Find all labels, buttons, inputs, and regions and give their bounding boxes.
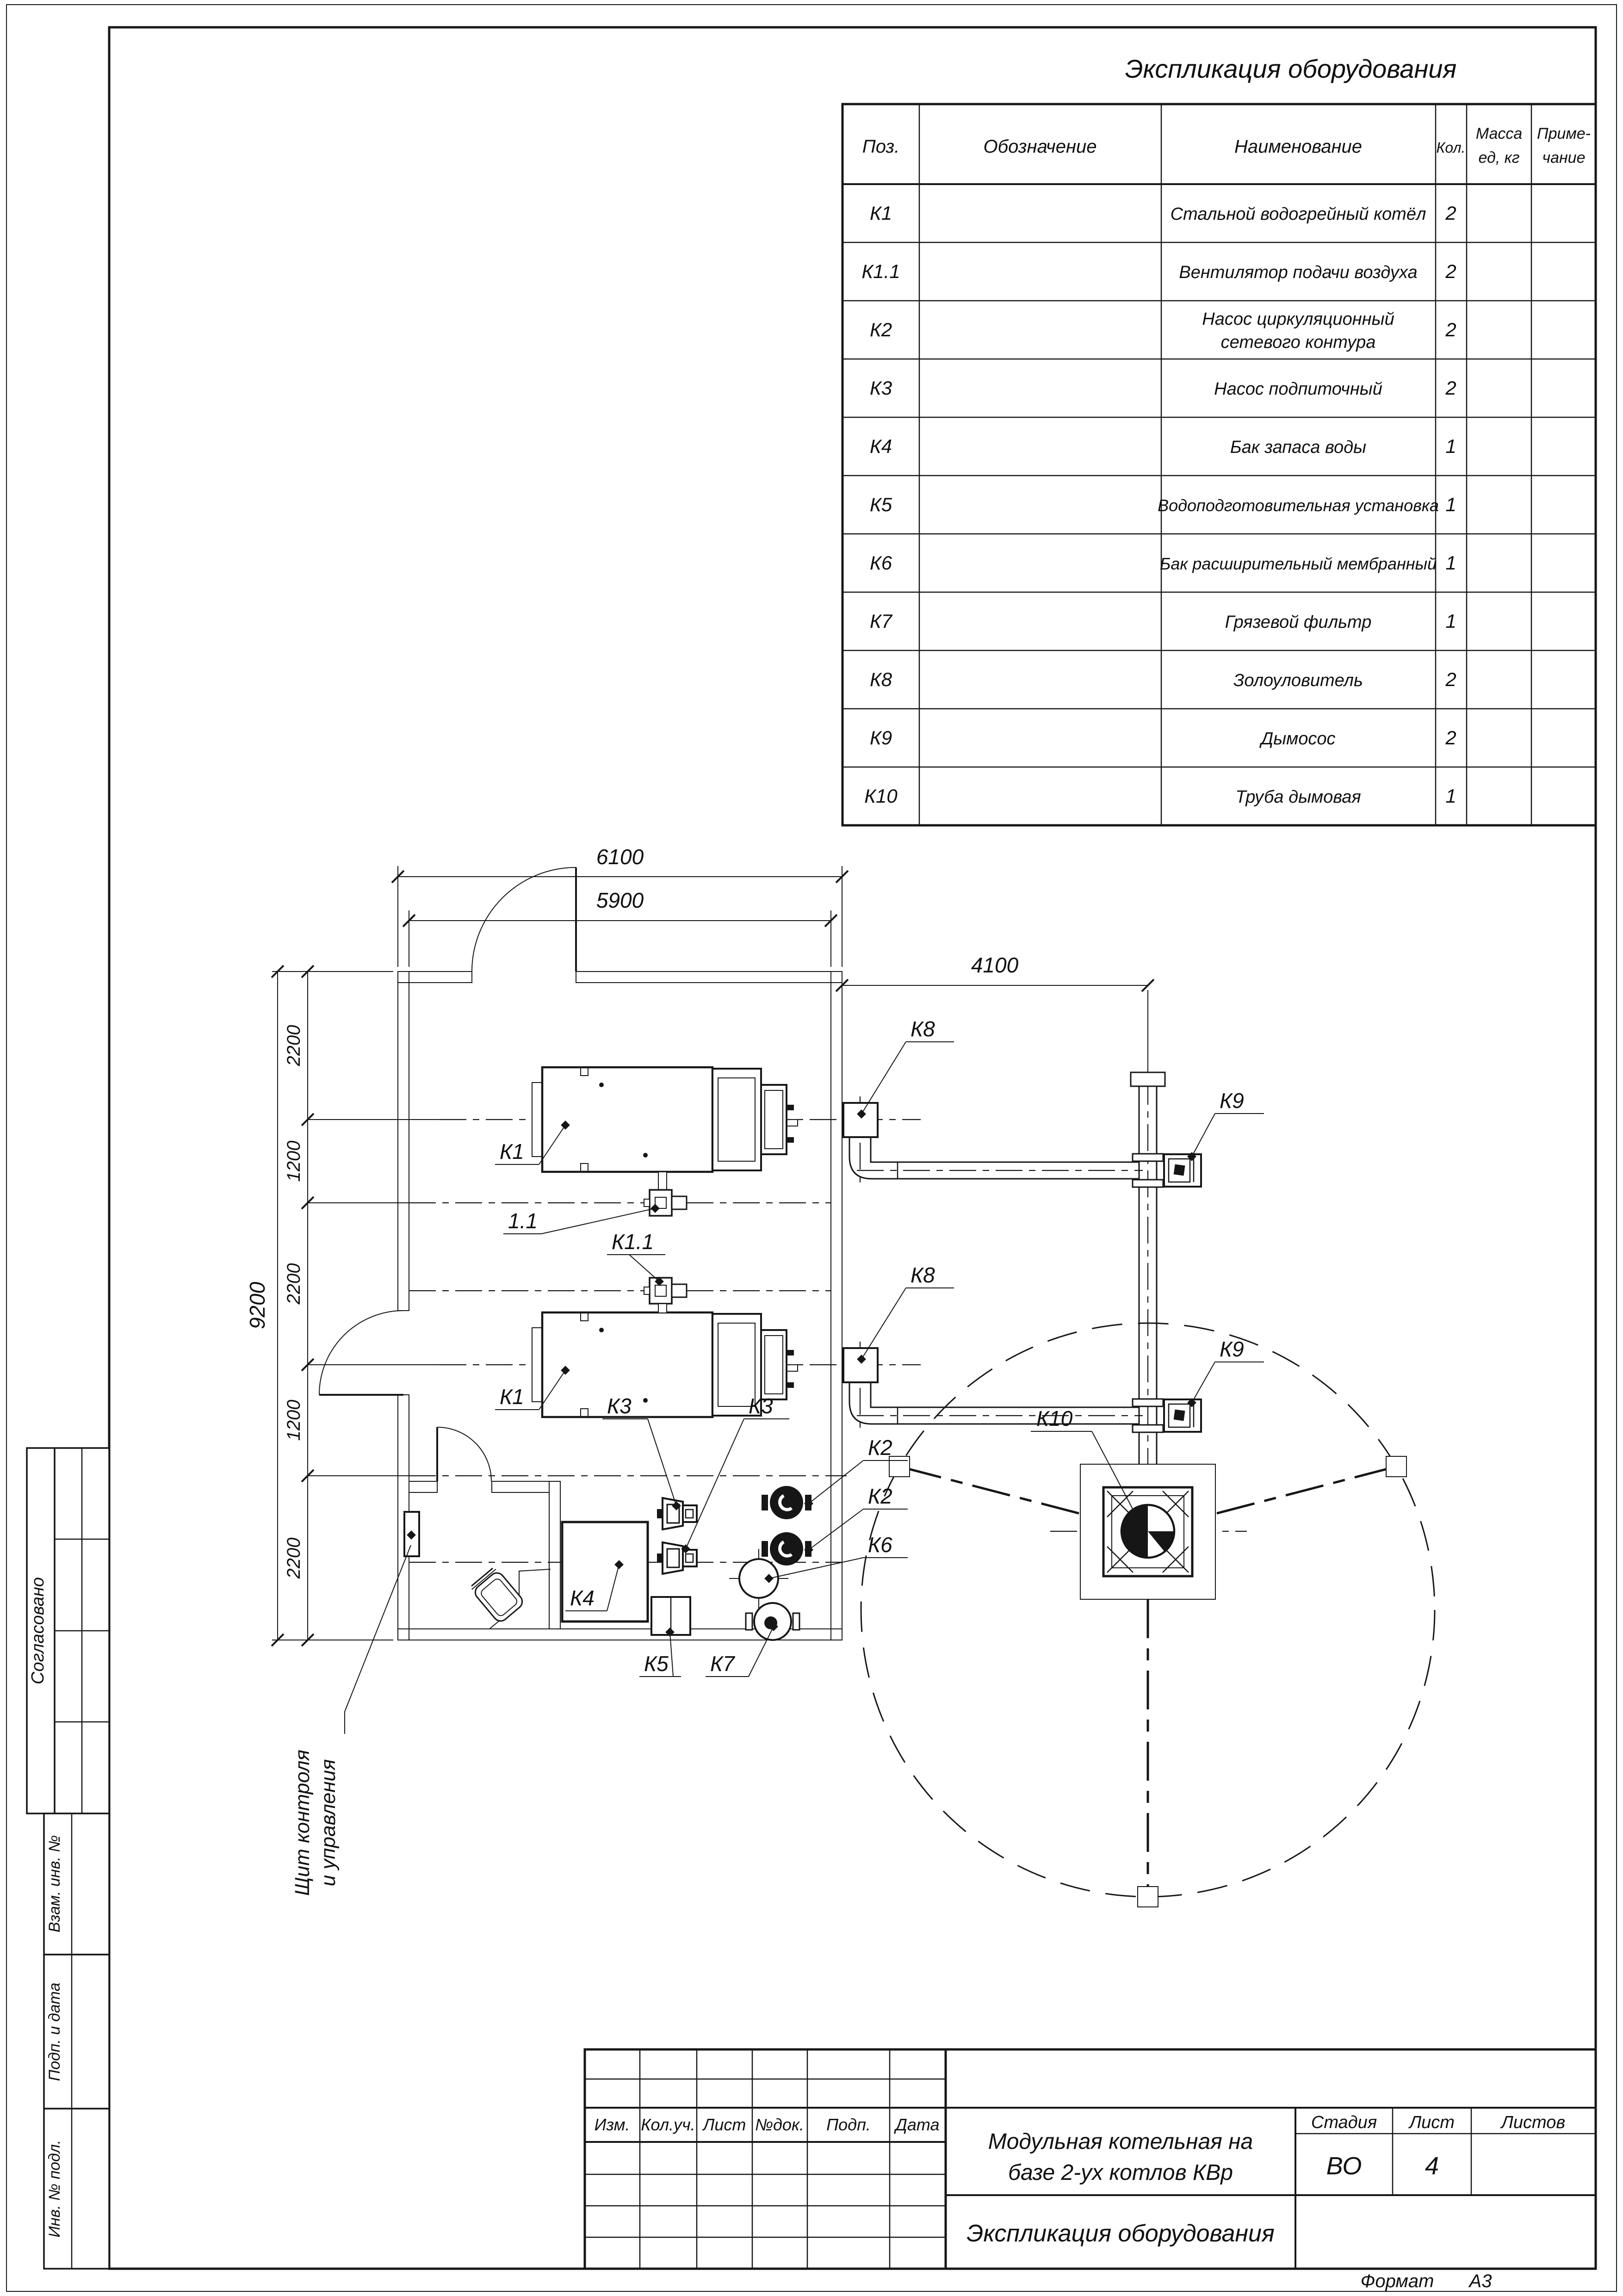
svg-text:К6: К6 [868, 1533, 892, 1557]
row-qty: 1 [1445, 610, 1456, 632]
row-qty: 1 [1445, 552, 1456, 574]
row-pos: К7 [870, 610, 893, 632]
svg-text:К8: К8 [911, 1263, 935, 1287]
format-note: Формат А3 [1361, 2271, 1492, 2291]
stamp-inv-orig: Инв. № подл. [46, 2140, 63, 2238]
row-pos: К10 [864, 785, 898, 807]
row-name: Дымосос [1259, 729, 1335, 749]
row-name: Грязевой фильтр [1225, 613, 1372, 632]
col-header-qty: Кол. [1437, 139, 1466, 156]
svg-text:1.1: 1.1 [508, 1209, 538, 1233]
col-header-mass-1: Масса [1476, 125, 1523, 142]
row-qty: 2 [1445, 727, 1456, 749]
air-fan-2 [644, 1278, 687, 1313]
row-qty: 2 [1445, 668, 1456, 690]
row-name: Бак расширительный мембранный [1160, 554, 1437, 573]
svg-text:К1: К1 [500, 1139, 524, 1163]
svg-text:Модульная котельная на: Модульная котельная на [988, 2129, 1253, 2154]
svg-text:4100: 4100 [971, 953, 1019, 977]
svg-text:базе 2-ух котлов КВр: базе 2-ух котлов КВр [1008, 2160, 1233, 2185]
door-left [319, 1311, 403, 1395]
door-vestibule [437, 1427, 491, 1481]
svg-text:1200: 1200 [284, 1141, 304, 1182]
row-name-2: сетевого контура [1221, 333, 1376, 352]
col-header-note-1: Приме- [1537, 125, 1591, 142]
svg-text:2200: 2200 [284, 1025, 304, 1067]
col-header-pos: Поз. [862, 136, 900, 157]
row-pos: К3 [870, 377, 892, 399]
row-qty: 1 [1445, 494, 1456, 515]
row-name: Золоуловитель [1233, 671, 1363, 690]
stamp-sign-date: Подп. и дата [46, 1983, 63, 2081]
vestibule-interior [404, 1512, 551, 1629]
row-pos: К4 [870, 435, 892, 457]
row-name: Стальной водогрейный котёл [1171, 204, 1426, 224]
row-name: Труба дымовая [1235, 787, 1361, 807]
control-panel-note: Щит контроля и управления [291, 1545, 411, 1896]
svg-text:К4: К4 [570, 1586, 595, 1610]
feed-pump-2 [657, 1542, 697, 1574]
svg-text:К1.1: К1.1 [612, 1230, 654, 1254]
svg-text:К2: К2 [868, 1484, 892, 1508]
sheets-label: Листов [1500, 2113, 1565, 2132]
row-pos: К2 [870, 319, 892, 340]
dim-height-overall: 9200 [245, 965, 393, 1646]
format-value: А3 [1468, 2271, 1492, 2291]
mud-filter-k7 [746, 1603, 799, 1640]
svg-text:Лист: Лист [702, 2115, 746, 2134]
col-header-name: Наименование [1234, 136, 1362, 157]
chimney-foundation [1080, 1464, 1215, 1599]
network-pump-2 [762, 1532, 811, 1566]
row-qty: 2 [1445, 202, 1456, 224]
svg-text:2200: 2200 [284, 1538, 304, 1579]
row-name: Насос подпиточный [1214, 379, 1382, 399]
format-label: Формат [1361, 2271, 1434, 2291]
drawing-sheet: Согласовано Взам. инв. № Подп. и дата Ин… [0, 0, 1623, 2296]
svg-text:К1: К1 [500, 1385, 524, 1409]
guy-anchor [1138, 1887, 1158, 1907]
label-smoke-2: К9 [1187, 1337, 1264, 1407]
stage-label: Стадия [1311, 2113, 1377, 2132]
row-pos: К5 [870, 494, 892, 515]
svg-text:Щит контроля: Щит контроля [291, 1750, 314, 1896]
svg-text:К8: К8 [911, 1017, 935, 1041]
row-name: Вентилятор подачи воздуха [1179, 263, 1417, 282]
row-qty: 2 [1445, 260, 1456, 282]
svg-text:К9: К9 [1220, 1089, 1244, 1113]
col-header-note-2: чание [1542, 149, 1585, 167]
doc-title: Экспликация оборудования [966, 2220, 1274, 2247]
svg-text:6100: 6100 [596, 845, 644, 869]
pump-tank-group [562, 1486, 811, 1640]
svg-text:Кол.уч.: Кол.уч. [641, 2115, 695, 2134]
row-qty: 2 [1445, 319, 1456, 340]
equipment-table: Экспликация оборудования Поз. Обозначени… [842, 54, 1596, 825]
row-name: Водоподготовительная установка [1158, 496, 1439, 515]
dim-to-chimney: 4100 [836, 953, 1154, 991]
svg-text:К7: К7 [710, 1652, 735, 1676]
col-header-mass-2: ед, кг [1478, 149, 1519, 167]
ash-catcher-1 [843, 1103, 878, 1137]
row-pos: К6 [870, 552, 892, 574]
svg-text:К9: К9 [1220, 1337, 1244, 1361]
title-block: Изм. Кол.уч. Лист №док. Подп. Дата Модул… [585, 2049, 1596, 2291]
row-name: Насос циркуляционный [1202, 309, 1394, 329]
dimensions: 6100 5900 4100 9200 [245, 845, 1154, 1646]
label-smoke-1: К9 [1187, 1089, 1264, 1161]
svg-text:5900: 5900 [596, 888, 644, 912]
col-header-designation: Обозначение [983, 136, 1096, 157]
svg-text:Изм.: Изм. [595, 2115, 630, 2134]
boiler-1 [532, 1067, 798, 1172]
stamp-subst-inv: Взам. инв. № [46, 1835, 63, 1932]
row-name: Бак запаса воды [1230, 438, 1366, 457]
sheet-value: 4 [1425, 2152, 1439, 2180]
door-top [472, 867, 576, 972]
ash-catcher-2 [843, 1348, 878, 1382]
row-pos: К1.1 [861, 260, 900, 282]
stamp-agreed: Согласовано [28, 1577, 48, 1684]
row-pos: К1 [870, 202, 892, 224]
sink [469, 1566, 525, 1624]
svg-text:Дата: Дата [894, 2115, 940, 2134]
row-pos: К9 [870, 727, 892, 749]
svg-text:9200: 9200 [245, 1281, 269, 1329]
equipment-table-title: Экспликация оборудования [1125, 54, 1457, 83]
svg-text:1200: 1200 [284, 1400, 304, 1441]
svg-text:К10: К10 [1036, 1406, 1073, 1430]
svg-text:Подп.: Подп. [826, 2115, 871, 2134]
svg-text:№док.: №док. [755, 2115, 804, 2134]
sheet-label: Лист [1408, 2113, 1455, 2132]
row-pos: К8 [870, 668, 892, 690]
network-pump-1 [762, 1486, 811, 1519]
left-margin-stamps: Согласовано Взам. инв. № Подп. и дата Ин… [27, 1448, 109, 2269]
stage-value: ВО [1326, 2152, 1362, 2180]
row-qty: 1 [1445, 435, 1456, 457]
svg-text:2200: 2200 [284, 1263, 304, 1305]
svg-text:К3: К3 [607, 1394, 632, 1418]
svg-text:К2: К2 [868, 1436, 892, 1460]
row-qty: 2 [1445, 377, 1456, 399]
smoke-exhauster-2 [1164, 1399, 1201, 1432]
floor-plan: К1 К1 1.1 К1.1 К8 [245, 845, 1435, 1907]
svg-text:К3: К3 [749, 1394, 773, 1418]
dim-width-inner: 5900 [403, 888, 837, 967]
svg-text:К5: К5 [644, 1652, 669, 1676]
svg-text:и управления: и управления [317, 1759, 340, 1887]
guy-anchor [1386, 1456, 1406, 1477]
row-qty: 1 [1445, 785, 1456, 807]
smoke-exhauster-1 [1164, 1154, 1201, 1187]
